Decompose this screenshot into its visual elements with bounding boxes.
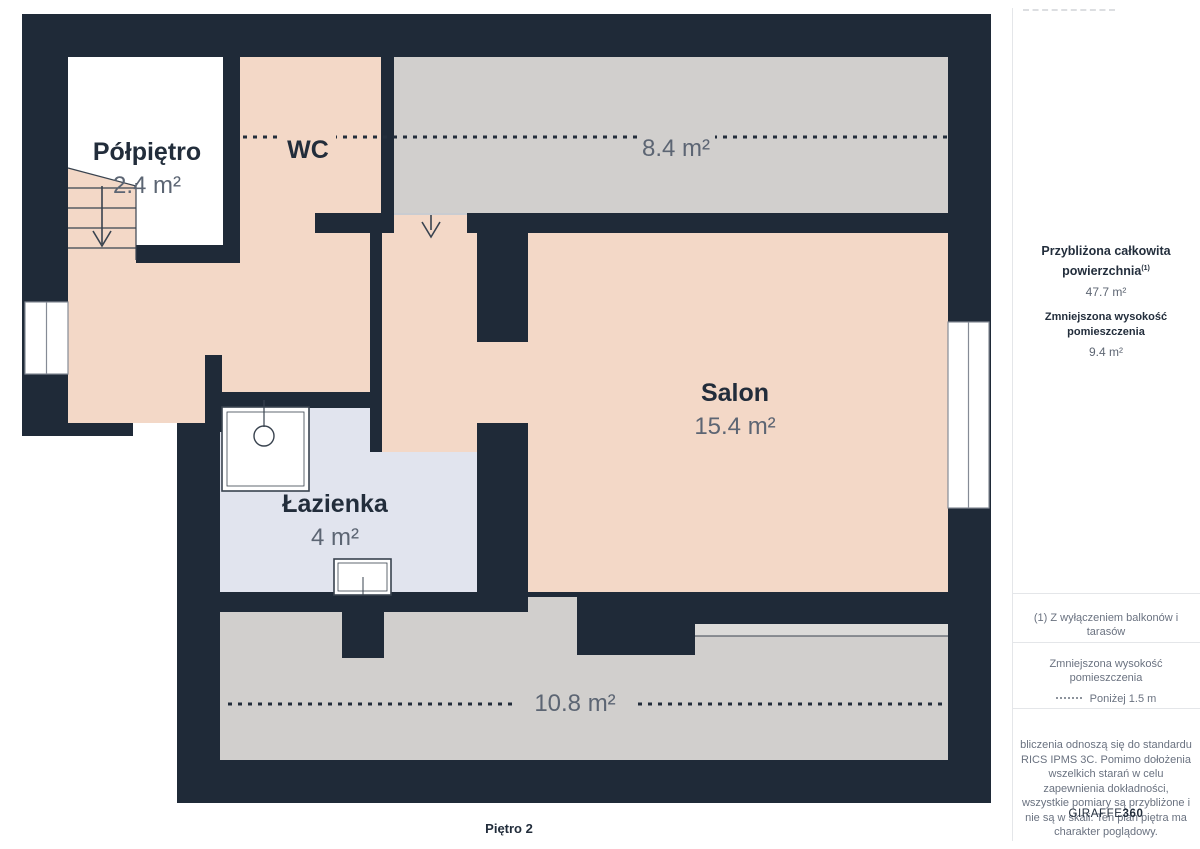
- salon-bottom-wall-thick: [577, 624, 695, 655]
- reduced-height-value: 9.4 m²: [1020, 344, 1192, 360]
- brand-name-regular: GIRAFFE: [1068, 808, 1122, 820]
- corridor-floor-left: [68, 263, 205, 423]
- legend-title: Zmniejszona wysokość pomieszczenia: [1020, 657, 1192, 685]
- salon-bottom-wall: [577, 592, 948, 624]
- window-icon-right: [948, 322, 989, 508]
- footnote-marker: (1): [1141, 265, 1150, 272]
- step-ledge: [695, 624, 948, 636]
- bathroom-left-wall-finger: [205, 355, 222, 432]
- sink-icon: [334, 559, 391, 595]
- room-salon-name: Salon: [701, 379, 769, 407]
- sidebar-divider-1: [1012, 593, 1200, 594]
- total-area-label-line1: Przybliżona całkowita: [1020, 243, 1192, 260]
- room-salon-area: 15.4 m²: [694, 413, 775, 440]
- salon-door-gap: [477, 342, 528, 423]
- wall-stub-bottom: [342, 610, 384, 658]
- total-area-label-word: powierzchnia: [1062, 264, 1141, 278]
- wc-door-gap: [240, 213, 315, 233]
- shower-icon: [222, 400, 309, 491]
- room-wc-name: WC: [287, 136, 329, 164]
- area-bottom-label: 10.8 m²: [534, 690, 615, 717]
- disclaimer-text: bliczenia odnoszą się do standardu RICS …: [1020, 738, 1192, 840]
- corridor-floor-mid: [240, 233, 370, 392]
- footnote-text: (1) Z wyłączeniem balkonów i tarasów: [1020, 611, 1192, 639]
- room-polpietro-name: Półpiętro: [93, 138, 201, 166]
- reduced-height-label: Zmniejszona wysokość pomieszczenia: [1020, 310, 1192, 340]
- floor-plan: Półpiętro 2.4 m² WC 8.4 m² Salon 15.4 m²…: [0, 0, 1010, 849]
- total-area-value: 47.7 m²: [1020, 284, 1192, 300]
- room-lazienka-name: Łazienka: [282, 490, 389, 518]
- window-icon-left: [25, 302, 68, 374]
- floor-label: Piętro 2: [485, 821, 533, 836]
- sidebar-divider-3: [1012, 708, 1200, 709]
- sidebar-divider-vertical: [1012, 8, 1013, 841]
- room-polpietro-area: 2.4 m²: [113, 172, 181, 199]
- total-area-label-line2: powierzchnia(1): [1020, 260, 1192, 280]
- legend: Zmniejszona wysokość pomieszczenia Poniż…: [1020, 657, 1192, 705]
- floor-plan-page: Półpiętro 2.4 m² WC 8.4 m² Salon 15.4 m²…: [0, 0, 1200, 849]
- legend-item-label: Poniżej 1.5 m: [1090, 693, 1157, 705]
- brand-logo: GIRAFFE360: [1020, 808, 1192, 820]
- sidebar-top-dashes: [1023, 9, 1115, 11]
- brand-name-bold: 360: [1123, 808, 1144, 820]
- info-sidebar: Przybliżona całkowita powierzchnia(1) 47…: [1012, 0, 1200, 849]
- sidebar-divider-2: [1012, 642, 1200, 643]
- legend-item: Poniżej 1.5 m: [1020, 693, 1192, 705]
- area-summary: Przybliżona całkowita powierzchnia(1) 47…: [1020, 243, 1192, 360]
- room-lazienka-area: 4 m²: [311, 524, 359, 551]
- corridor-floor-mid2: [382, 233, 477, 452]
- area-top-label: 8.4 m²: [642, 135, 710, 162]
- dotted-line-swatch-icon: [1056, 697, 1082, 699]
